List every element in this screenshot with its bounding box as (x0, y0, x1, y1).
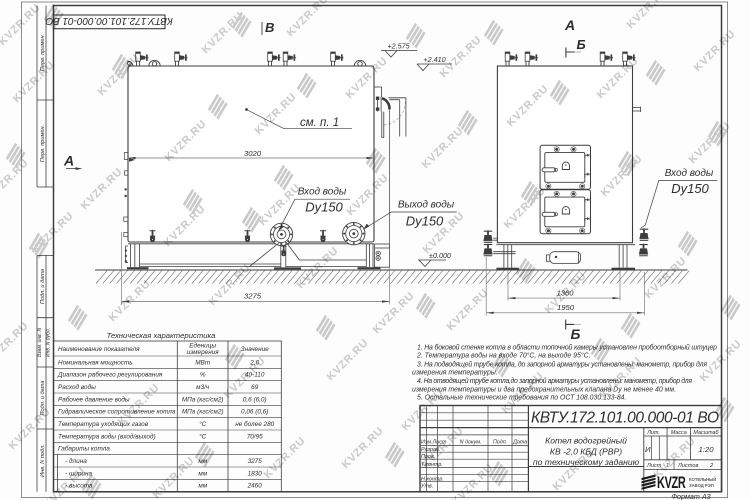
svg-text:KVZR.RU: KVZR.RU (207, 262, 253, 308)
svg-text:Н.контр.: Н.контр. (421, 476, 444, 482)
svg-text:KVZR.RU: KVZR.RU (400, 387, 446, 433)
svg-text:мм: мм (198, 470, 207, 477)
svg-text:А: А (564, 17, 575, 33)
svg-text:KVZR.RU: KVZR.RU (295, 245, 341, 291)
svg-text:МПа (кгс/см2): МПа (кгс/см2) (182, 409, 224, 416)
svg-text:Взам. инв. N: Взам. инв. N (37, 328, 43, 358)
svg-text:измерения температуры и два пр: измерения температуры и два предохраните… (412, 385, 676, 393)
svg-text:Диапазон рабочего регулировани: Диапазон рабочего регулирования (57, 371, 163, 379)
svg-text:Котел водогрейный: Котел водогрейный (545, 436, 627, 446)
svg-text:Б: Б (571, 326, 581, 342)
svg-text:0,06 (0,6): 0,06 (0,6) (241, 409, 268, 416)
svg-text:Инв. N дубл.: Инв. N дубл. (46, 328, 52, 357)
svg-text:КОТЕЛЬНЫЙ: КОТЕЛЬНЫЙ (689, 477, 716, 482)
svg-text:Перв. примен.: Перв. примен. (40, 125, 46, 162)
svg-text:не более 280: не более 280 (235, 420, 274, 428)
svg-text:Dy150: Dy150 (406, 214, 444, 229)
svg-text:KVZR.RU: KVZR.RU (625, 0, 671, 31)
svg-text:KVZR.RU: KVZR.RU (325, 337, 371, 383)
svg-text:KVZR.RU: KVZR.RU (445, 287, 491, 333)
svg-text:KVZR.RU: KVZR.RU (0, 157, 31, 203)
svg-text:1. На боковой стенке котла в: 1. На боковой стенке котла в области топ… (417, 343, 717, 351)
svg-text:KVZR.RU: KVZR.RU (107, 278, 153, 324)
svg-text:°С: °С (199, 432, 207, 440)
svg-text:Dy150: Dy150 (671, 181, 709, 196)
svg-text:1830: 1830 (248, 470, 263, 477)
svg-text:Дата: Дата (512, 440, 527, 446)
svg-text:KVZR.RU: KVZR.RU (262, 435, 308, 481)
svg-text:Температура воды (вход/выход): Температура воды (вход/выход) (58, 432, 156, 440)
svg-text:Гидравлическое сопротивление к: Гидравлическое сопротивление котла (58, 408, 176, 416)
svg-text:В: В (265, 20, 274, 35)
svg-text:измерения температуры.: измерения температуры. (412, 370, 498, 377)
svg-text:+2.575: +2.575 (387, 42, 410, 51)
svg-text:Лит.: Лит. (646, 430, 660, 436)
svg-text:70/95: 70/95 (247, 433, 263, 440)
svg-text:Рабочее давление воды: Рабочее давление воды (58, 395, 130, 403)
svg-text:KVZR.RU: KVZR.RU (643, 255, 689, 301)
svg-text:Вход воды: Вход воды (298, 187, 347, 198)
svg-text:Утв.: Утв. (420, 483, 433, 489)
svg-text:см. п. 1: см. п. 1 (300, 117, 339, 129)
svg-text:Масштаб: Масштаб (693, 430, 719, 436)
svg-text:м3/ч: м3/ч (196, 384, 210, 391)
svg-text:Значение: Значение (241, 346, 269, 353)
svg-text:KVZR.RU: KVZR.RU (340, 425, 386, 471)
svg-text:И: И (645, 445, 651, 454)
svg-text:+2.410: +2.410 (423, 55, 445, 64)
svg-text:Формат А3: Формат А3 (671, 492, 710, 500)
svg-text:2: 2 (709, 463, 714, 469)
svg-text:4. На отводящей трубе котла,д: 4. На отводящей трубе котла,до запорной … (417, 377, 692, 385)
svg-text:KVZR.RU: KVZR.RU (687, 120, 733, 166)
svg-text:3020: 3020 (244, 149, 262, 158)
svg-text:N докум.: N докум. (460, 440, 482, 446)
svg-text:KVZR.RU: KVZR.RU (0, 320, 31, 366)
svg-text:0,6 (6,0): 0,6 (6,0) (243, 396, 267, 403)
svg-text:измерения: измерения (187, 349, 220, 356)
svg-text:KVZR.RU: KVZR.RU (420, 125, 466, 171)
svg-text:3. На подводящей трубе котла,: 3. На подводящей трубе котла, до запорно… (417, 361, 707, 369)
svg-text:%: % (200, 372, 206, 379)
svg-text:Температура уходящих газов: Температура уходящих газов (58, 420, 149, 428)
svg-text:2460: 2460 (247, 483, 263, 490)
svg-text:Масса: Масса (671, 430, 687, 436)
svg-text:KVZR.RU: KVZR.RU (11, 59, 57, 105)
svg-text:KVZR.RU: KVZR.RU (151, 455, 197, 500)
svg-text:МПа (кгс/см2): МПа (кгс/см2) (182, 396, 224, 403)
svg-text:ЗАВОД РЭП: ЗАВОД РЭП (689, 483, 714, 488)
svg-text:Габариты котла: Габариты котла (58, 445, 110, 453)
svg-text:3275: 3275 (248, 458, 263, 465)
svg-text:А: А (63, 153, 74, 169)
svg-text:Подп. и дата: Подп. и дата (40, 269, 46, 304)
svg-text:KVZR.RU: KVZR.RU (79, 166, 125, 212)
svg-text:Dy150: Dy150 (305, 200, 343, 215)
svg-text:Подп.: Подп. (493, 440, 507, 446)
svg-text:Наименование показателя: Наименование показателя (58, 346, 140, 353)
svg-text:KVZR.RU: KVZR.RU (692, 28, 738, 74)
svg-text:Техническая характеристика: Техническая характеристика (107, 331, 217, 340)
svg-text:Б: Б (577, 37, 586, 52)
svg-text:Расход воды: Расход воды (58, 383, 96, 391)
svg-text:KVZR.RU: KVZR.RU (371, 290, 417, 336)
svg-text:Выход воды: Выход воды (398, 200, 455, 211)
svg-text:Вход воды: Вход воды (665, 168, 714, 179)
svg-text:КВТУ.172.101.00.000-01 ВО: КВТУ.172.101.00.000-01 ВО (45, 15, 173, 26)
svg-text:Инв. N подл.: Инв. N подл. (40, 444, 46, 477)
svg-text:мм: мм (198, 483, 207, 490)
svg-text:- длина: - длина (58, 457, 87, 465)
svg-text:Номинальная мощность: Номинальная мощность (58, 359, 133, 366)
svg-text:3275: 3275 (244, 292, 262, 301)
svg-text:1:20: 1:20 (699, 445, 715, 454)
svg-text:°С: °С (199, 420, 207, 428)
svg-text:Листов: Листов (677, 463, 698, 469)
svg-text:КВТУ.172.101.00.000-01 ВО: КВТУ.172.101.00.000-01 ВО (531, 409, 719, 426)
svg-text:69: 69 (251, 384, 259, 391)
svg-text:МВт: МВт (195, 359, 211, 366)
